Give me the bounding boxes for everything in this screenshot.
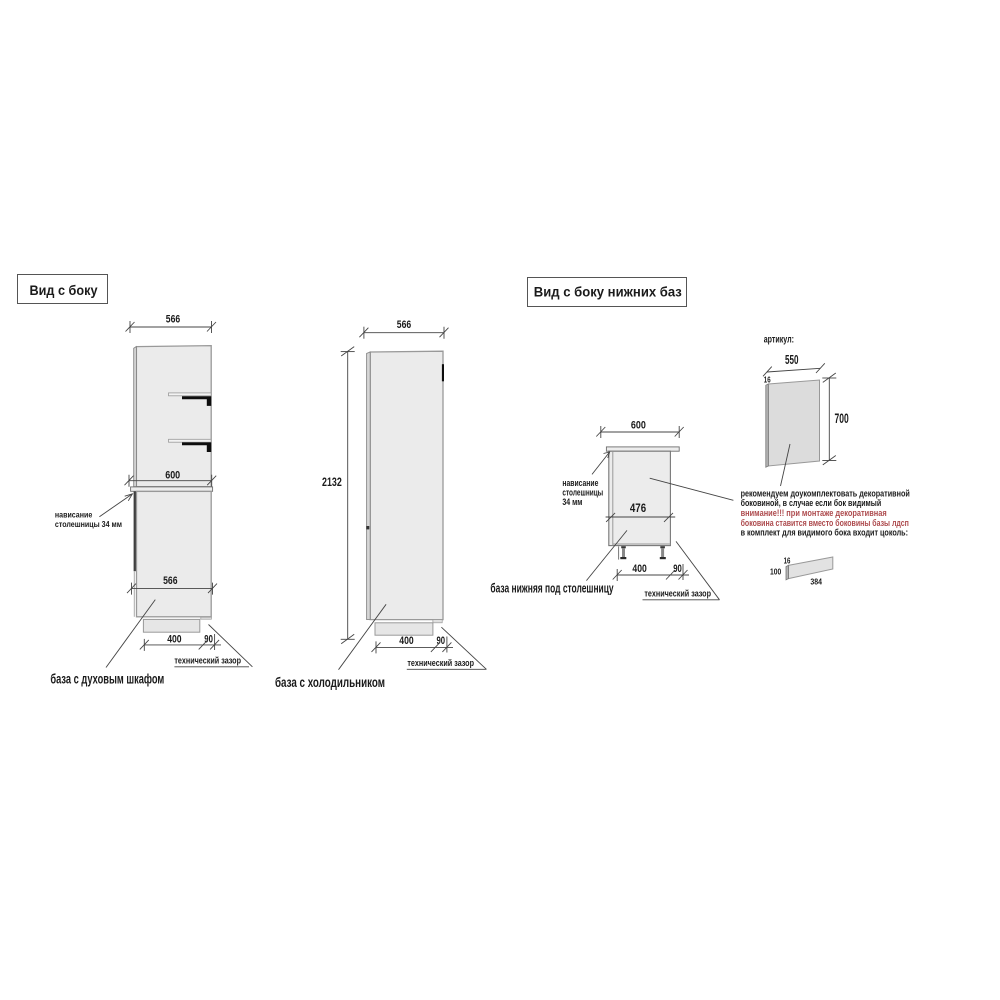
svg-text:16: 16 (764, 374, 771, 384)
svg-text:566: 566 (166, 314, 180, 326)
svg-text:600: 600 (165, 470, 180, 482)
svg-text:технический зазор: технический зазор (407, 658, 474, 668)
svg-text:90: 90 (204, 633, 213, 645)
svg-text:в комплект для видимого бока в: в комплект для видимого бока входит цоко… (741, 528, 908, 539)
svg-text:технический зазор: технический зазор (644, 589, 711, 599)
svg-text:600: 600 (631, 420, 646, 432)
svg-text:база с холодильником: база с холодильником (275, 675, 385, 690)
svg-text:400: 400 (632, 563, 646, 575)
svg-text:566: 566 (163, 575, 177, 587)
svg-text:столешницы: столешницы (562, 487, 603, 497)
svg-text:476: 476 (630, 503, 646, 515)
svg-text:Вид с боку: Вид с боку (30, 283, 98, 298)
svg-text:34 мм: 34 мм (562, 497, 582, 507)
svg-text:нависание: нависание (55, 510, 93, 520)
svg-text:база нижняя под столешницу: база нижняя под столешницу (490, 582, 613, 596)
svg-text:550: 550 (785, 353, 799, 367)
svg-text:столешницы 34 мм: столешницы 34 мм (55, 519, 122, 529)
svg-text:артикул:: артикул: (764, 335, 794, 346)
svg-text:база с духовым шкафом: база с духовым шкафом (50, 671, 164, 686)
svg-text:технический зазор: технический зазор (174, 656, 241, 666)
svg-text:100: 100 (770, 567, 781, 577)
svg-text:90: 90 (673, 563, 682, 575)
svg-text:384: 384 (810, 576, 822, 586)
svg-text:нависание: нависание (562, 478, 598, 488)
svg-text:16: 16 (784, 556, 791, 566)
svg-text:400: 400 (399, 635, 413, 647)
svg-text:566: 566 (397, 319, 411, 331)
svg-text:2132: 2132 (322, 477, 342, 489)
svg-text:400: 400 (167, 634, 181, 646)
svg-text:700: 700 (835, 411, 849, 426)
svg-text:Вид с боку нижних баз: Вид с боку нижних баз (534, 285, 682, 300)
